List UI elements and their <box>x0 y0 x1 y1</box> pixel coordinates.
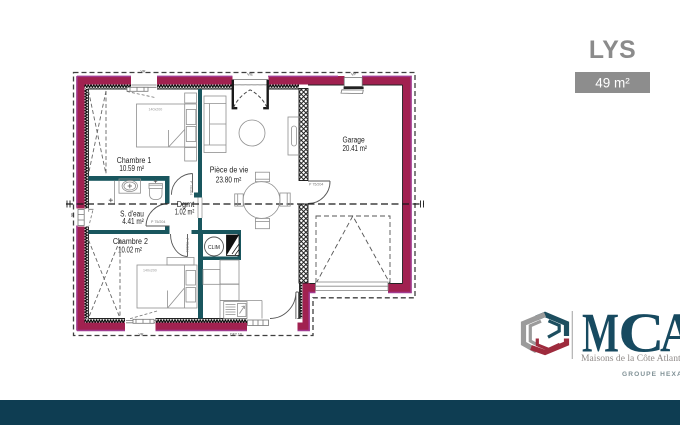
svg-text:10.59 m²: 10.59 m² <box>119 164 144 173</box>
svg-text:20.41 m²: 20.41 m² <box>342 144 367 153</box>
svg-text:23.80 m²: 23.80 m² <box>216 176 242 185</box>
svg-text:P 75/204: P 75/204 <box>151 220 165 224</box>
svg-text:CLIM: CLIM <box>208 245 220 251</box>
svg-text:Garage: Garage <box>342 135 365 144</box>
svg-text:96: 96 <box>71 213 75 217</box>
svg-text:P 75/204: P 75/204 <box>189 181 193 195</box>
svg-text:P 75/204: P 75/204 <box>185 238 189 252</box>
svg-text:4.41 m²: 4.41 m² <box>122 217 144 226</box>
svg-text:VIE: VIE <box>247 73 253 77</box>
svg-text:Maisons de la Côte Atlantique: Maisons de la Côte Atlantique <box>581 353 680 364</box>
svg-text:GROUPE HEXAOM: GROUPE HEXAOM <box>622 371 680 378</box>
svg-text:49 m²: 49 m² <box>595 76 630 91</box>
svg-text:DF2.10: DF2.10 <box>230 333 242 337</box>
svg-text:P 75/204: P 75/204 <box>309 182 323 186</box>
svg-text:10.02 m²: 10.02 m² <box>118 245 142 254</box>
svg-text:LYS: LYS <box>589 37 636 64</box>
svg-text:VR: VR <box>139 333 144 337</box>
svg-text:Pièce de vie: Pièce de vie <box>210 166 249 175</box>
svg-text:VP: VP <box>351 73 356 77</box>
svg-text:140x200: 140x200 <box>149 108 163 112</box>
svg-text:VR: VR <box>141 70 146 74</box>
svg-text:1.02 m²: 1.02 m² <box>175 207 195 216</box>
svg-text:140x200: 140x200 <box>143 269 157 273</box>
